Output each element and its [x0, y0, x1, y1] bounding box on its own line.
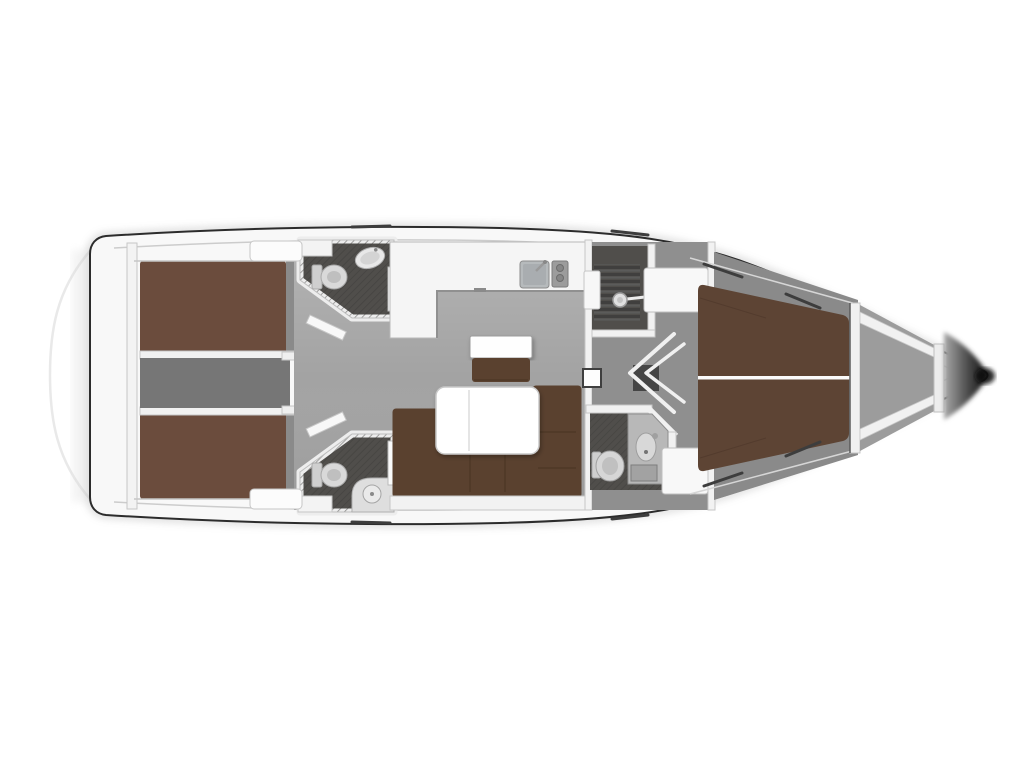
table-top — [436, 387, 539, 454]
galley-sink — [520, 260, 549, 288]
faucet — [652, 433, 658, 439]
burner — [557, 265, 564, 272]
berth-centerline — [698, 376, 862, 380]
saloon-table — [436, 387, 539, 454]
floor-plan-canvas — [0, 0, 1024, 768]
shower-arm — [627, 297, 645, 299]
shower-tray — [631, 465, 657, 481]
sink-inner — [523, 264, 546, 285]
toilet-seat — [327, 469, 341, 481]
forward-corridor — [583, 242, 715, 510]
nav-seat — [470, 336, 532, 382]
stern-bulkhead — [127, 243, 137, 509]
drain — [644, 450, 648, 454]
transom-platform — [50, 250, 90, 502]
wall-hatch — [583, 369, 601, 387]
counter-handle — [474, 288, 486, 292]
faucet-base — [543, 260, 547, 264]
toilet — [312, 265, 347, 289]
yacht-floor-plan — [0, 0, 1024, 768]
forepeak — [860, 305, 995, 451]
sideboard — [470, 336, 532, 358]
shower-rose-center — [617, 297, 623, 303]
bench — [472, 358, 530, 382]
aft-cabin-starboard — [134, 411, 310, 499]
locker — [298, 240, 332, 256]
burner — [557, 275, 564, 282]
bow-wall — [934, 344, 944, 412]
toilet-seat — [602, 457, 618, 475]
bow-tip-shadow — [975, 368, 995, 384]
deck-locker-port — [250, 241, 302, 261]
double-berth-aft-port — [140, 261, 286, 355]
forward-cabin — [690, 252, 862, 500]
double-berth-aft-starboard — [140, 411, 286, 499]
engine-wall-top — [140, 351, 300, 359]
sofa-back-shelf — [390, 496, 586, 510]
deck-locker-starboard — [250, 489, 302, 509]
chain-locker-bulkhead — [850, 303, 860, 453]
engine-wall-bottom — [140, 407, 300, 415]
galley-stove — [552, 261, 568, 287]
head-wall — [586, 405, 652, 413]
aft-cabin-port — [134, 261, 310, 355]
drain — [370, 492, 374, 496]
engine-compartment — [140, 358, 290, 408]
deck-hatch — [352, 522, 390, 523]
deck-hatch — [352, 226, 390, 227]
locker — [298, 496, 332, 512]
shower-wall — [592, 330, 655, 337]
toilet — [312, 463, 347, 487]
toilet — [592, 451, 624, 481]
wall-cabinet — [584, 271, 600, 309]
toilet-seat — [327, 271, 341, 283]
